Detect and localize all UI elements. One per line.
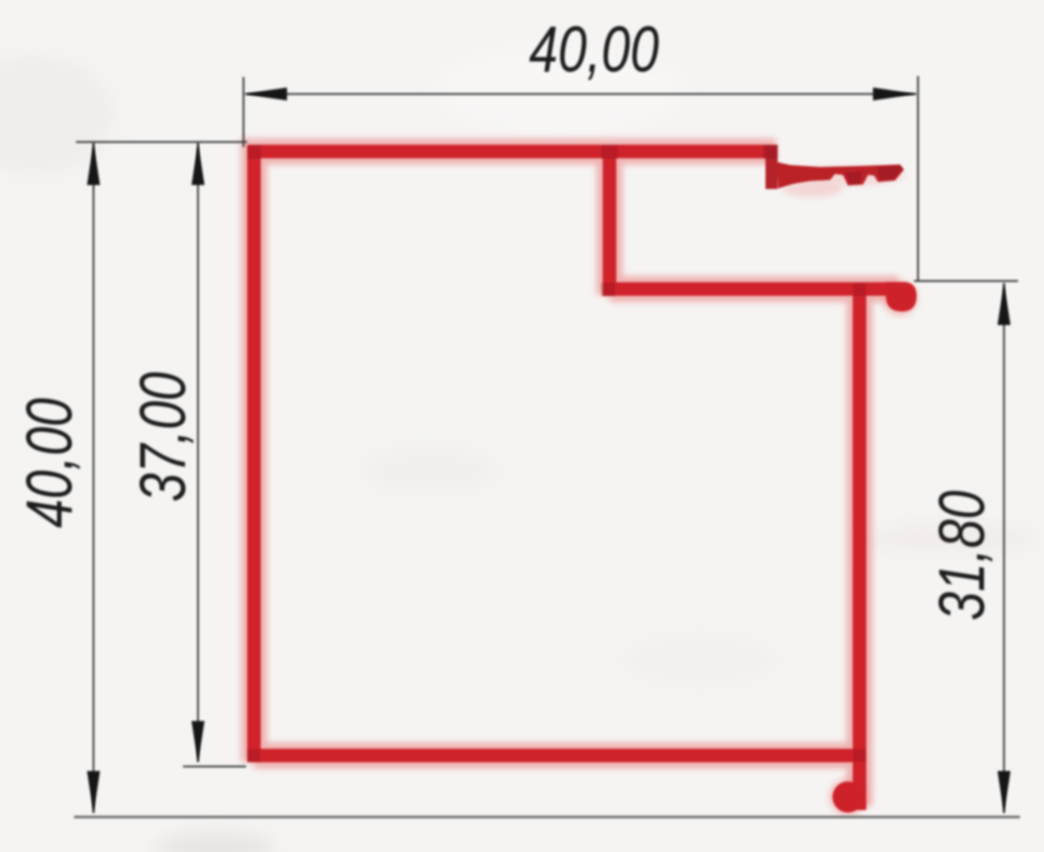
svg-text:37,00: 37,00 <box>128 372 200 502</box>
svg-text:31,80: 31,80 <box>927 490 999 620</box>
svg-text:40,00: 40,00 <box>529 14 659 86</box>
svg-text:40,00: 40,00 <box>14 398 86 528</box>
